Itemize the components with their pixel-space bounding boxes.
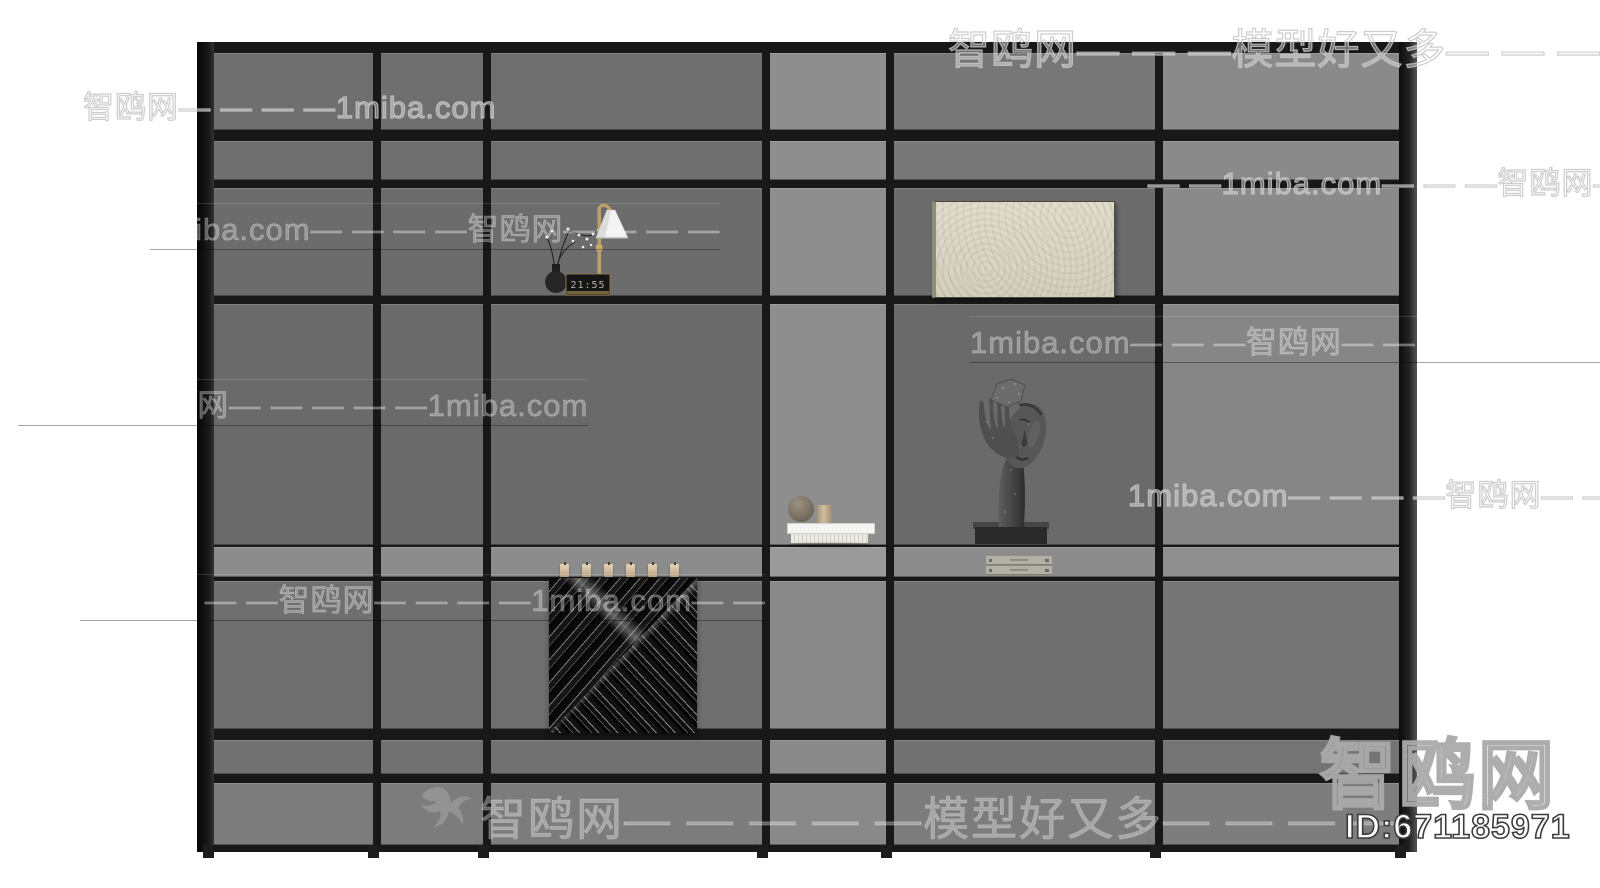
candle: [670, 564, 679, 577]
wall-panel: [381, 304, 483, 545]
sphere-vase: [788, 496, 814, 522]
wall-panel: [894, 740, 1155, 774]
sculpture-plaque: [986, 556, 1052, 565]
frame-foot: [203, 845, 214, 858]
wall-panel: [214, 188, 373, 296]
wall-panel: [214, 581, 373, 729]
wall-panel: [491, 53, 762, 130]
candle: [560, 564, 569, 577]
wall-panel: [770, 188, 886, 296]
wall-panel: [1163, 581, 1399, 729]
framed-relief-art: [932, 201, 1115, 298]
candle: [582, 564, 591, 577]
wall-panel: [381, 141, 483, 180]
sculpture-plaque: [986, 566, 1052, 575]
shelf-band-segment: [1163, 547, 1399, 577]
model-preview-image: 21:55: [0, 0, 1600, 888]
wall-panel: [770, 53, 886, 130]
candle: [626, 564, 635, 577]
model-id-badge: ID:671185971: [1345, 808, 1571, 847]
lamp-pole: [598, 208, 602, 274]
wall-panel: [214, 740, 373, 774]
bottom-watermark-text: 智鸥网— — — — —模型好又多— — — —: [480, 783, 1399, 849]
wall-panel: [214, 304, 373, 545]
wall-panel: [1163, 188, 1399, 296]
wall-panel: [381, 581, 483, 729]
wall-panel: [214, 141, 373, 180]
wall-panel: [894, 53, 1155, 130]
shelf-band-segment: [770, 547, 886, 577]
sculpture-wrist: [999, 458, 1025, 527]
wall-panel: [491, 740, 762, 774]
clock-display: 21:55: [570, 280, 605, 291]
sculpture-base: [975, 527, 1047, 544]
wall-panel: [770, 581, 886, 729]
blossom-dots: [546, 228, 600, 249]
shelf-band-segment: [381, 547, 483, 577]
unit-left-frame: [197, 42, 214, 852]
wall-panel: [214, 53, 373, 130]
abstract-wood-art: [549, 578, 697, 733]
book-stack: [787, 523, 875, 534]
wall-panel: [491, 141, 762, 180]
shelf-band-segment: [214, 547, 373, 577]
frame-foot: [368, 845, 379, 858]
wall-panel: [381, 188, 483, 296]
book-shadow: [789, 543, 871, 547]
wall-panel: [1163, 53, 1399, 130]
wall-panel: [1163, 141, 1399, 180]
candle: [604, 564, 613, 577]
wall-panel: [381, 53, 483, 130]
wall-panel: [491, 304, 762, 545]
lamp-joint: [596, 245, 603, 251]
wall-panel: [214, 783, 373, 845]
display-wall-unit: 21:55: [197, 42, 1417, 852]
wall-panel: [894, 581, 1155, 729]
wall-panel: [381, 740, 483, 774]
table-lamp-group: 21:55: [542, 202, 634, 298]
seagull-icon: [418, 781, 474, 831]
face-hand-sculpture: [963, 374, 1059, 548]
candle: [648, 564, 657, 577]
wall-panel: [894, 141, 1155, 180]
wall-panel: [1163, 304, 1399, 545]
wall-panel: [770, 740, 886, 774]
wall-panel: [770, 141, 886, 180]
flip-clock: 21:55: [566, 274, 610, 295]
sculpture-rock: [991, 379, 1025, 407]
vase-body: [545, 271, 567, 293]
